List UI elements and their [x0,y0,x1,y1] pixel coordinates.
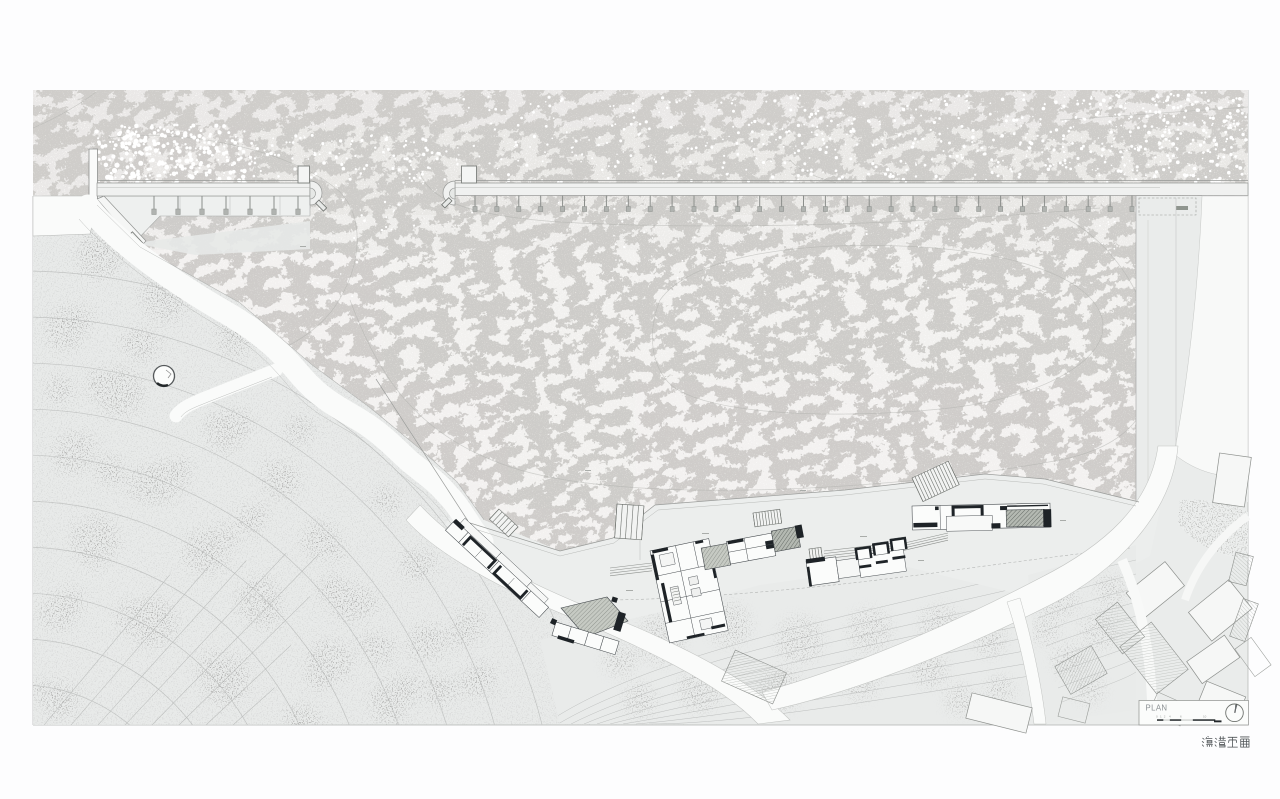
svg-text:PLAN: PLAN [1146,704,1168,713]
svg-text:10: 10 [1203,715,1207,719]
